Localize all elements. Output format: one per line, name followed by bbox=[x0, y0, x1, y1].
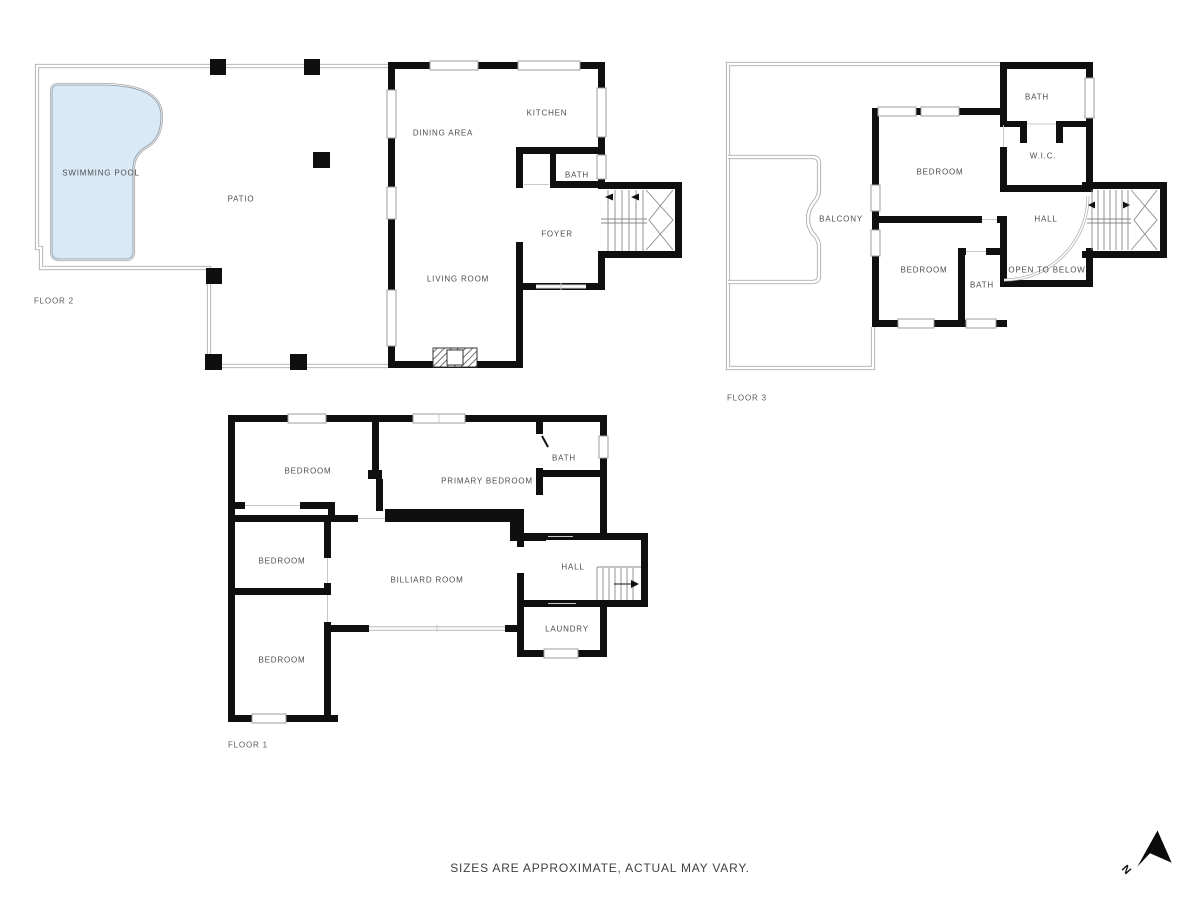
floor-2-label: FLOOR 2 bbox=[34, 297, 74, 306]
room-label-laundry: LAUNDRY bbox=[545, 625, 589, 634]
staircase-floor2 bbox=[601, 190, 673, 251]
room-label-hall-f3: HALL bbox=[1034, 215, 1057, 224]
room-label-living-room: LIVING ROOM bbox=[427, 275, 489, 284]
floor-1-walls bbox=[228, 415, 648, 722]
patio-pillars bbox=[205, 59, 330, 370]
floor-3-windows bbox=[871, 78, 1094, 328]
room-label-bedroom-f1-top: BEDROOM bbox=[285, 467, 332, 476]
room-label-bedroom-f3-top: BEDROOM bbox=[917, 168, 964, 177]
room-label-swimming-pool: SWIMMING POOL bbox=[62, 169, 140, 178]
room-label-kitchen: KITCHEN bbox=[527, 109, 568, 118]
floor-2-windows bbox=[387, 61, 606, 346]
floor-1-label: FLOOR 1 bbox=[228, 741, 268, 750]
floorplan-page: SWIMMING POOL PATIO DINING AREA KITCHEN … bbox=[0, 0, 1200, 900]
disclaimer-text: SIZES ARE APPROXIMATE, ACTUAL MAY VARY. bbox=[450, 861, 750, 875]
room-label-patio: PATIO bbox=[228, 195, 255, 204]
floorplan-canvas bbox=[0, 0, 1200, 900]
floor-3-walls bbox=[872, 62, 1167, 327]
room-label-balcony: BALCONY bbox=[819, 215, 863, 224]
room-label-bedroom-f1-mid: BEDROOM bbox=[259, 557, 306, 566]
room-label-wic: W.I.C. bbox=[1030, 152, 1057, 161]
floor-3-plan bbox=[728, 62, 1167, 368]
room-label-foyer: FOYER bbox=[541, 230, 573, 239]
billiard-window bbox=[369, 625, 505, 632]
room-label-bath-f2: BATH bbox=[565, 171, 589, 180]
room-label-primary-bedroom: PRIMARY BEDROOM bbox=[441, 477, 533, 486]
room-label-hall-f1: HALL bbox=[561, 563, 584, 572]
staircase-floor1 bbox=[597, 567, 641, 600]
room-label-bedroom-f1-bottom: BEDROOM bbox=[259, 656, 306, 665]
room-label-bath-f3-top: BATH bbox=[1025, 93, 1049, 102]
room-label-open-to-below: OPEN TO BELOW bbox=[1008, 266, 1085, 275]
floor-1-plan bbox=[228, 414, 648, 723]
floor-2-plan bbox=[37, 59, 682, 370]
floor-3-label: FLOOR 3 bbox=[727, 394, 767, 403]
room-label-bedroom-f3-bottom: BEDROOM bbox=[901, 266, 948, 275]
room-label-dining-area: DINING AREA bbox=[413, 129, 473, 138]
staircase-floor3 bbox=[1087, 190, 1157, 250]
fireplace bbox=[433, 348, 477, 367]
room-label-bath-f3-bottom: BATH bbox=[970, 281, 994, 290]
room-label-bath-f1: BATH bbox=[552, 454, 576, 463]
north-arrow-icon bbox=[1137, 831, 1171, 867]
room-label-billiard-room: BILLIARD ROOM bbox=[390, 576, 463, 585]
